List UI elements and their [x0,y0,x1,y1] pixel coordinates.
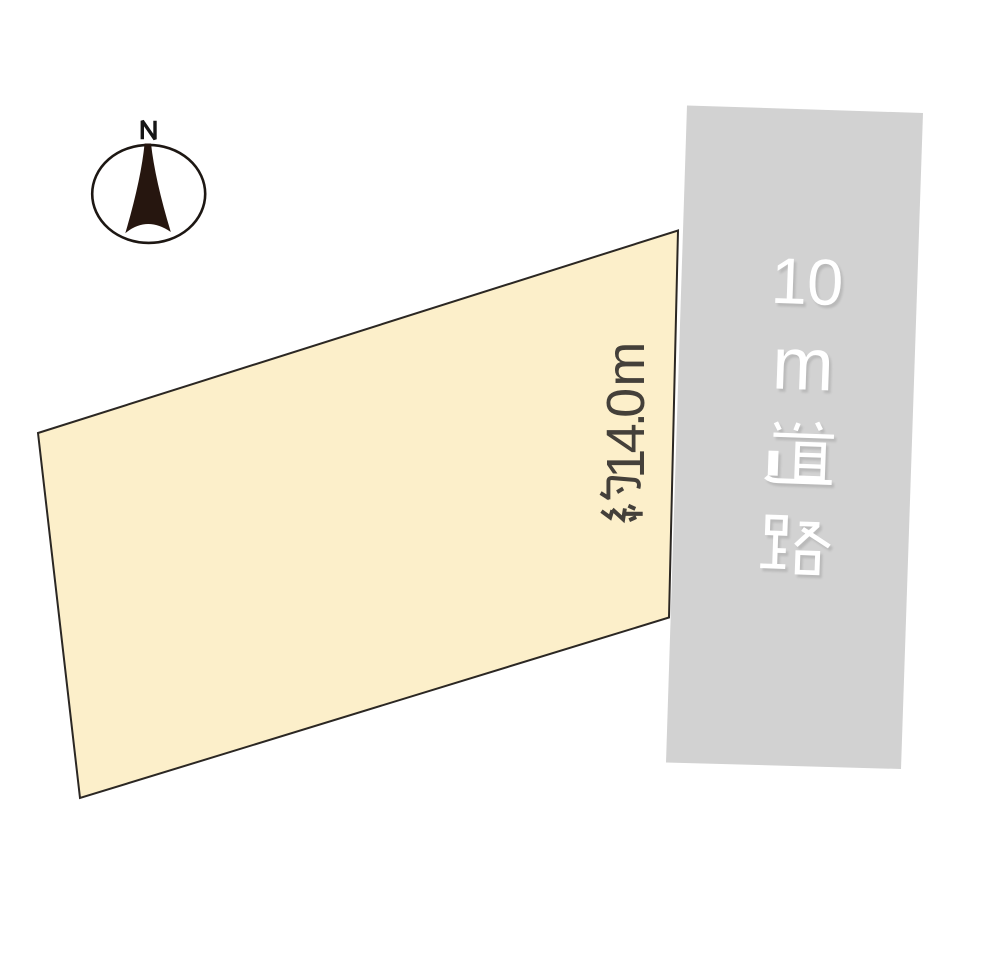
svg-text:14.0m: 14.0m [596,342,656,479]
svg-text:m: m [771,321,836,406]
svg-text:10: 10 [770,244,845,319]
